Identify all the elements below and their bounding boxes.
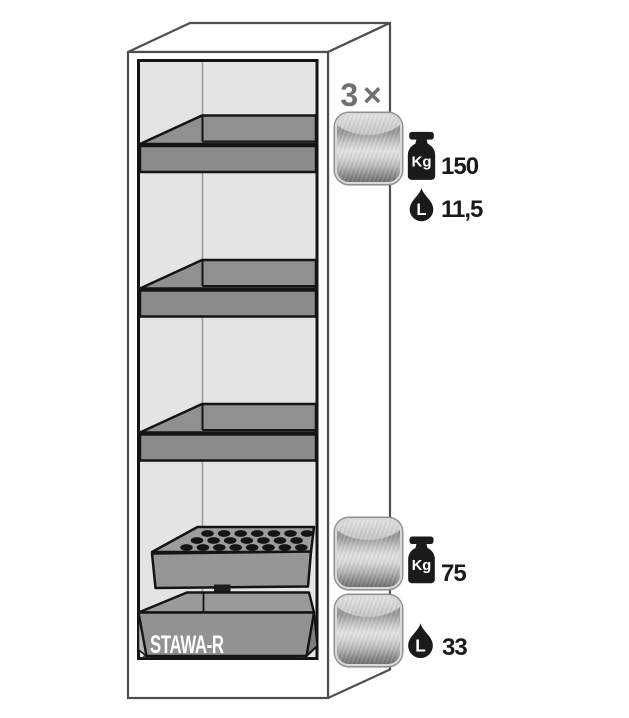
insert-button	[335, 518, 402, 589]
shelf-load-value: 150	[441, 155, 478, 179]
shelf-button	[335, 113, 402, 184]
sump-volume-value: 33	[442, 636, 467, 660]
shelf-volume-value: 11,5	[441, 198, 482, 222]
safety-cabinet-illustration: STAWA-R 3 × Kg 150 L 11,5 Kg 75 L	[0, 0, 629, 718]
drop-icon: L	[407, 622, 434, 664]
cabinet-drawing	[0, 0, 629, 718]
weight-icon: Kg	[406, 131, 437, 186]
volume-unit-label: L	[415, 636, 426, 656]
weight-unit-label: Kg	[412, 558, 432, 574]
shelf-count-label: 3 ×	[337, 81, 383, 109]
drop-icon: L	[408, 187, 435, 227]
volume-unit-label: L	[416, 200, 426, 219]
weight-unit-label: Kg	[411, 153, 431, 170]
sump-button	[335, 595, 402, 666]
weight-icon: Kg	[406, 536, 437, 589]
sump-label: STAWA-R	[150, 634, 224, 656]
insert-load-value: 75	[441, 562, 466, 586]
